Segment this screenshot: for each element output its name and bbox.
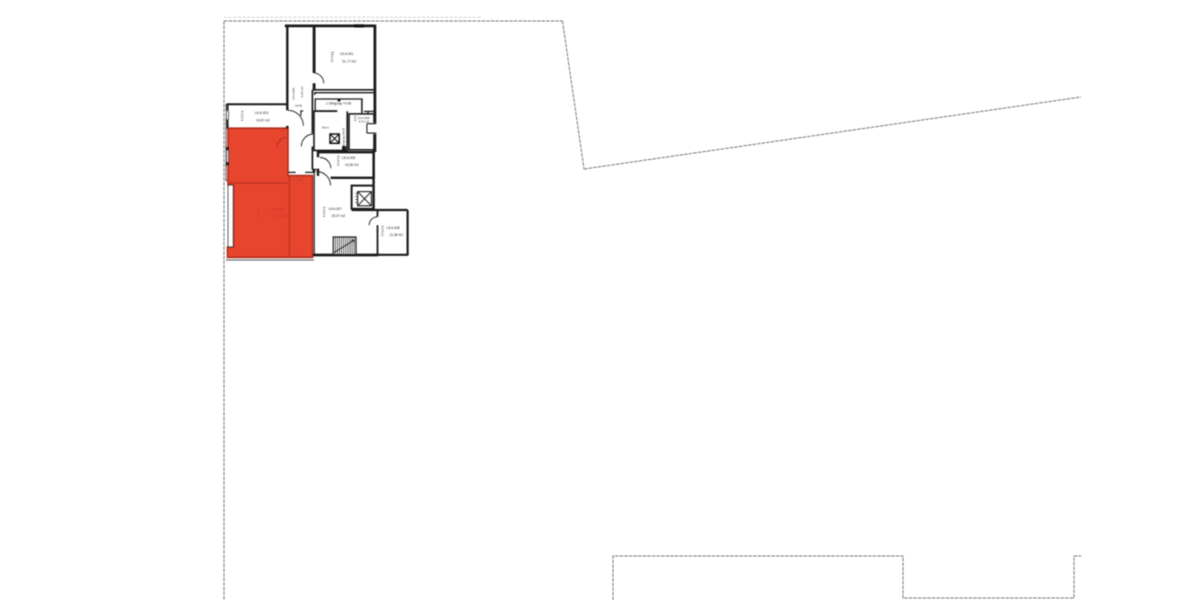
svg-text:Lft.A.002: Lft.A.002	[292, 87, 296, 99]
svg-text:Lft.A.005: Lft.A.005	[342, 156, 355, 160]
svg-text:Lft.A.004: Lft.A.004	[272, 208, 286, 212]
svg-text:31,77 m2: 31,77 m2	[342, 59, 356, 63]
svg-text:Steigung 14x18: Steigung 14x18	[342, 128, 346, 148]
svg-text:=⊢5: =⊢5	[295, 104, 302, 108]
svg-text:5,94 m2: 5,94 m2	[300, 86, 304, 97]
svg-text:Lft.A.001: Lft.A.001	[340, 52, 354, 56]
svg-text:Lft.A.007: Lft.A.007	[329, 207, 342, 211]
svg-text:1.Steigung +4.06: 1.Steigung +4.06	[326, 102, 351, 106]
svg-text:35mm: 35mm	[322, 125, 329, 129]
svg-text:Lft.A.003: Lft.A.003	[255, 111, 268, 115]
svg-text:10,50 m2: 10,50 m2	[345, 163, 359, 167]
svg-text:Lft.A.008: Lft.A.008	[387, 226, 400, 230]
svg-text:4,71 m2: 4,71 m2	[359, 120, 370, 124]
svg-text:20,07 m2: 20,07 m2	[332, 214, 346, 218]
svg-text:11,38 m2: 11,38 m2	[390, 233, 404, 237]
svg-text:19,67 m2: 19,67 m2	[256, 119, 270, 123]
svg-text:94,04 m2: 94,04 m2	[274, 214, 288, 218]
